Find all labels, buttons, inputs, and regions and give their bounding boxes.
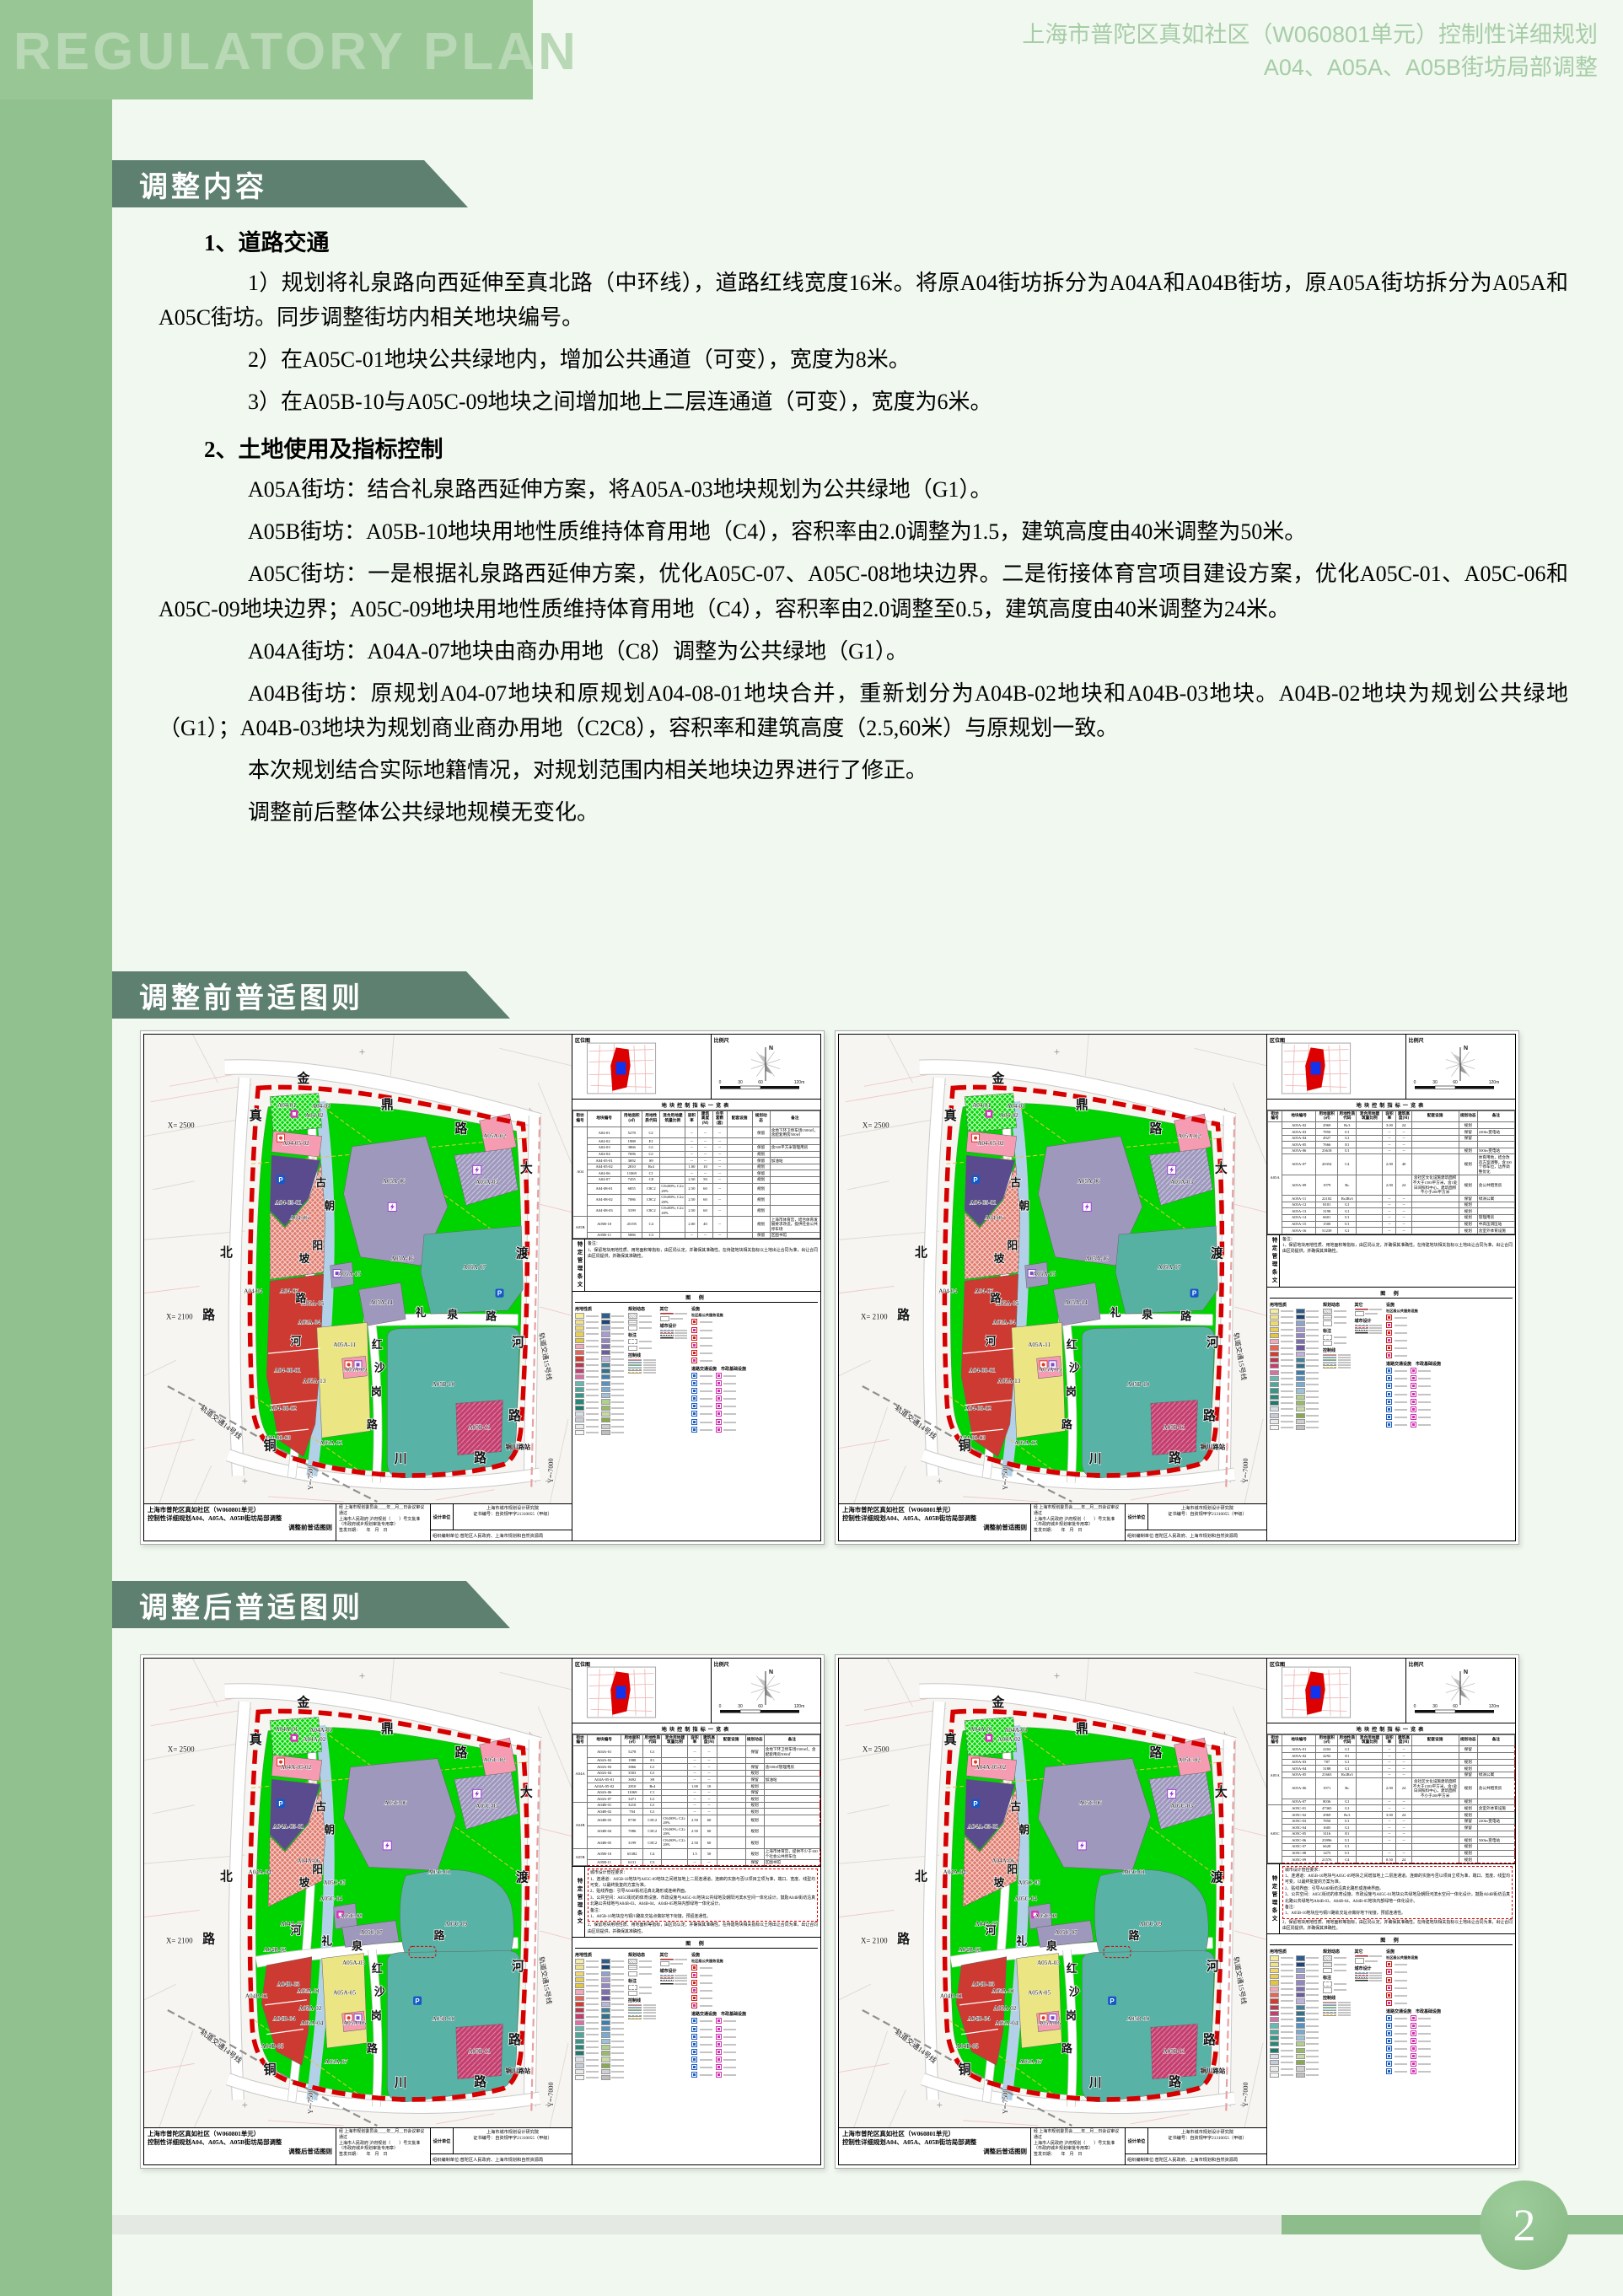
map-label: 路 — [1149, 1745, 1163, 1760]
scale-box: 比例尺N03060120m — [712, 1659, 820, 1723]
map-label: 铜 — [264, 2062, 277, 2077]
table-row: A04-08-027086C8C2C8≤80%; C2≥20%2.5060--规… — [573, 1194, 820, 1205]
svg-text:P: P — [973, 1176, 978, 1184]
map-label: 路 — [1169, 2074, 1182, 2089]
table-row: A04-05-022810Rr41.0010--规划 — [573, 1164, 820, 1170]
special-clause-box: 特定管理条文城市设计管控要求：1、连通道：A05B-10地块与A05C-09地块… — [1267, 1864, 1515, 1935]
plan-area-marker — [1311, 1686, 1321, 1699]
map-label: A05C-06 — [1079, 1800, 1102, 1807]
page-number: 2 — [1513, 2199, 1536, 2251]
table-row: A05C-041605G1----保留 — [1268, 1825, 1515, 1831]
map-label: A05A-01 — [992, 1987, 1014, 1994]
legend-landuse: 用地性质 — [1270, 1300, 1319, 1432]
table-row: A05A-037850U1----保留220kv变电站 — [1268, 1129, 1515, 1136]
map-label: A04A-05-02 — [975, 1764, 1007, 1771]
table-col-header: 建筑高度(M) — [1396, 1111, 1411, 1122]
map-label: A05C-04 — [1014, 1895, 1037, 1902]
titleblock-plan-name: 上海市普陀区真如社区（W060801单元）控制性详细规划A04、A05A、A05… — [839, 2128, 1031, 2164]
map-label: 河 — [985, 1334, 996, 1347]
special-clause-text: 城市设计管控要求：1、连通道：A05B-10地块与A05C-09地块之间增加地上… — [1280, 1864, 1515, 1934]
titleblock-design-unit: 设计单位上海市城市规划设计研究院证书编号：自资规甲字21310055（甲级）组织… — [431, 1504, 572, 1541]
map-label: 渡 — [1211, 1246, 1224, 1261]
map-label: Y=-7000 — [547, 1458, 555, 1483]
map-label: X= 2500 — [168, 1121, 195, 1129]
map-label: A04-06 — [290, 1215, 309, 1222]
map-label: 金 — [991, 1071, 1005, 1086]
map-label: 古 — [315, 1799, 326, 1813]
table-row: A04-077455C82.5050--规划 — [573, 1176, 820, 1183]
map-label: 川 — [394, 1452, 407, 1466]
map-label: 渡 — [1211, 1870, 1224, 1885]
section-banner-adjust-content: 调整内容 — [112, 160, 468, 207]
table-col-header: 地块编号 — [1282, 1735, 1316, 1746]
table-row: A04A-05-022810Rr41.0010规划 — [573, 1783, 820, 1790]
plan-sheet-panel: PPA04-01A04-03A04-02A04-05-02A04-05-01A0… — [140, 1030, 825, 1545]
table-col-header: 容积率 — [1383, 1111, 1396, 1122]
page-number-badge: 2 — [1480, 2180, 1569, 2270]
table-row: A05C-053116E1---- — [1268, 1831, 1515, 1837]
table-col-header: 住宅套数(套) — [712, 1111, 727, 1127]
map-label: 礼 — [1016, 1933, 1027, 1947]
map-label: 路 — [486, 1309, 497, 1322]
svg-text:60: 60 — [1453, 1704, 1458, 1709]
map-label: A04A-01 — [970, 1726, 992, 1733]
location-map-box: 区位图 — [1267, 1659, 1406, 1723]
svg-text:60: 60 — [758, 1704, 763, 1709]
map-label: A04B-01 — [940, 1993, 963, 2000]
map-label: A05A-02 — [1178, 1133, 1201, 1140]
power-icon — [1078, 1842, 1086, 1850]
map-label: Y=-7000 — [1242, 2082, 1249, 2107]
map-label: 阳 — [312, 1239, 323, 1251]
power-icon — [1168, 1165, 1176, 1174]
power-icon — [388, 1202, 396, 1211]
table-row: A04A-05-013692S9----保留加油站 — [573, 1777, 820, 1783]
map-label: 真 — [944, 1732, 957, 1747]
map-label: A05B-11 — [468, 1424, 491, 1431]
svg-text:P: P — [1110, 1998, 1115, 2005]
table-col-header: 建筑高度(M) — [1396, 1735, 1411, 1746]
content-paragraph: 本次规划结合实际地籍情况，对规划范围内相关地块边界进行了修正。 — [159, 753, 1568, 788]
titleblock: 上海市普陀区真如社区（W060801单元）控制性详细规划A04、A05A、A05… — [144, 2127, 572, 2164]
map-label: A05B-10 — [1127, 1381, 1150, 1388]
table-row: A04-08-016855C8C2C8≤80%; C2≥20%2.5060--规… — [573, 1183, 820, 1194]
table-col-header: 配套设施 — [727, 1111, 752, 1127]
facility-icon — [290, 1734, 298, 1741]
map-label: Y=-7500 — [307, 1465, 314, 1491]
facility-icon — [290, 1110, 298, 1117]
legend-title: 图 例 — [1270, 1288, 1513, 1299]
footer-band-green — [1282, 2215, 1623, 2234]
table-row: A05B-115886C3------保留区图书馆 — [573, 1232, 820, 1239]
table-row: A05A-133198G1----规划 — [1268, 1208, 1515, 1215]
special-clause-text: 备注：1、保留地块用地性质、用地面积等指标，由区局认定，并确保其准确性。在待建地… — [585, 1239, 820, 1291]
map-label: 朝 — [1018, 1822, 1029, 1836]
titleblock-approval: 经 上海市规划委员会____年__月__日会议审议通过上海市人民政府 沪府规划（… — [1031, 2128, 1126, 2164]
titleblock-plan-name: 上海市普陀区真如社区（W060801单元）控制性详细规划A04、A05A、A05… — [144, 2128, 336, 2164]
map-label: A05A-09 — [1039, 1367, 1061, 1374]
map-label: 铜川路站 — [1200, 1443, 1225, 1451]
table-title: 地块控制指标一览表 — [1267, 1100, 1515, 1110]
map-label: A05C-09 — [445, 1921, 468, 1928]
special-clause-label: 特定管理条文 — [1267, 1864, 1280, 1934]
scale-box: 比例尺N03060120m — [1406, 1035, 1515, 1099]
map-label: A04-05-02 — [282, 1140, 309, 1147]
table-title: 地块控制指标一览表 — [572, 1723, 820, 1734]
parking-icon: P — [971, 1799, 980, 1808]
svg-text:120m: 120m — [793, 1080, 804, 1085]
table-row: A05A-03787G1----规划 — [1268, 1759, 1515, 1766]
map-label: 泉 — [352, 1938, 363, 1952]
table-row: A05C-0623996U1----规划500kv变电站 — [1268, 1837, 1515, 1844]
table-row: A04B-02704G1----规划 — [573, 1809, 820, 1815]
special-clause-text: 城市设计管控要求：1、连通道：A05B-10地块与A05C-09地块之间增加地上… — [585, 1867, 820, 1937]
table-row: A05A-1651239G1----规划含室外体育设施 — [1268, 1228, 1515, 1234]
legend-other: 其它城市设计 — [1355, 1947, 1383, 2078]
map-label: A05A-04 — [995, 2019, 1018, 2026]
table-row: A04AA04A-015278G1----保留含地下环卫停车场1500㎡，含配套… — [573, 1746, 820, 1757]
table-row: A05A-1122102Rr2Rr3----保留绿洲公寓 — [1268, 1196, 1515, 1202]
table-col-header: 配套设施 — [1411, 1111, 1459, 1122]
map-label: 岗 — [371, 2008, 382, 2022]
north-arrow-scale: N03060120m — [1408, 1042, 1507, 1094]
table-col-header: 备注 — [1477, 1735, 1514, 1746]
svg-text:0: 0 — [718, 1080, 721, 1085]
map-label: A04A-04 — [249, 1869, 271, 1875]
map-label: 路 — [1203, 2032, 1217, 2047]
map-label: A05C-03 — [1170, 1803, 1193, 1809]
legend-facilities: 设施社区级公共服务设施道路交通设施 市政基础设施 — [691, 1950, 746, 2082]
map-label: 河 — [512, 1335, 524, 1350]
before-plan-row: PPA04-01A04-03A04-02A04-05-02A04-05-01A0… — [140, 1030, 1529, 1546]
table-col-header: 地块编号 — [588, 1111, 621, 1127]
table-row: A05A-061971Rc2.0024含社区文化设施建筑面积不大于1583平方米… — [1268, 1778, 1515, 1799]
legend-landuse: 用地性质 — [1270, 1947, 1319, 2078]
map-label: A04-08-02 — [965, 1406, 992, 1412]
map-label: 路 — [433, 1928, 445, 1942]
parcel — [322, 1954, 368, 2048]
map-label: 路 — [1169, 1450, 1182, 1465]
content-heading: 1、道路交通 — [159, 224, 1568, 257]
table-col-header: 规划动态 — [745, 1735, 764, 1746]
legend-status: 规划动态标注控制线 — [628, 1304, 656, 1436]
map-label: 古 — [315, 1175, 326, 1189]
legend-other: 其它城市设计 — [1355, 1300, 1383, 1432]
special-clause-box: 特定管理条文备注：1、保留地块用地性质、用地面积等指标，由区局认定，并确保其准确… — [572, 1239, 820, 1292]
map-label: 路 — [508, 2032, 522, 2047]
section-banner-label: 调整后普适图则 — [139, 1584, 363, 1626]
power-icon — [473, 1789, 481, 1798]
table-row: A05A-151500U1----规划中高压调压站 — [1268, 1221, 1515, 1228]
map-label: 北 — [220, 1246, 234, 1261]
table-col-header: 备注 — [770, 1111, 820, 1127]
map-label: A04A-03 — [309, 1727, 332, 1734]
map-label: A04-01 — [277, 1102, 296, 1109]
map-label: A04B-01 — [245, 1993, 268, 2000]
map-label: A05C-07 — [360, 1929, 383, 1936]
map-label: A04-06 — [985, 1215, 1003, 1222]
control-table-box: 地块控制指标一览表街坊编号地块编号用地面积(㎡)用地性质代码混合用地建筑量比例容… — [1267, 1100, 1515, 1235]
table-col-header: 规划动态 — [1459, 1735, 1477, 1746]
legend-other: 其它城市设计 — [660, 1304, 688, 1436]
map-label: A05A-02 — [483, 1133, 506, 1140]
titleblock: 上海市普陀区真如社区（W060801单元）控制性详细规划A04、A05A、A05… — [839, 2127, 1266, 2164]
parking-icon: P — [277, 1799, 285, 1808]
table-col-header: 配套设施 — [1411, 1735, 1459, 1746]
map-label: 河 — [1207, 1335, 1219, 1350]
svg-text:P: P — [1192, 1290, 1197, 1298]
map-label: A04-04 — [244, 1288, 262, 1295]
map-label: 坡 — [298, 1251, 310, 1265]
legend-landuse: 用地性质 — [575, 1950, 624, 2082]
table-row: A04BA04B-013210G1----规划 — [573, 1802, 820, 1809]
map-label: 铜 — [264, 1438, 277, 1453]
map-label: 鼎 — [1076, 1097, 1088, 1112]
table-col-header: 街坊编号 — [573, 1735, 588, 1746]
svg-text:30: 30 — [738, 1704, 743, 1709]
map-label: A05C-09 — [1140, 1921, 1163, 1928]
map-label: 路 — [508, 1408, 522, 1423]
map-label: 坡 — [298, 1875, 310, 1889]
table-row: A04-033866G1------保留含500平方米管理用房 — [573, 1144, 820, 1151]
legend-status: 规划动态标注控制线 — [1323, 1300, 1351, 1432]
map-label: A05C-06 — [384, 1800, 407, 1807]
map-label: 川 — [1088, 2076, 1102, 2090]
map-label: 坡 — [993, 1251, 1005, 1265]
titleblock: 上海市普陀区真如社区（W060801单元）控制性详细规划A04、A05A、A05… — [839, 1503, 1266, 1541]
control-index-table: 街坊编号地块编号用地面积(㎡)用地性质代码混合用地建筑量比例容积率建筑高度(M)… — [1267, 1734, 1515, 1863]
svg-text:0: 0 — [1413, 1080, 1416, 1085]
map-label: 阳 — [312, 1863, 323, 1875]
table-row: A05AA05A-022969Rc33.0024规划 — [1268, 1122, 1515, 1129]
table-col-header: 备注 — [764, 1735, 820, 1746]
location-inset-map — [1269, 1666, 1363, 1718]
plan-map-area: PPA04-01A04-03A04-02A04-05-02A04-05-01A0… — [144, 1035, 572, 1503]
map-label: 泉 — [1046, 1938, 1058, 1952]
table-row: A04B-038730C8C2C8≤80%; C2≥20%2.5060规划 — [573, 1815, 820, 1826]
map-label: 河 — [985, 1923, 996, 1937]
map-label: 路 — [1203, 1408, 1217, 1423]
plan-sheet-panel: PPA04-01A04-03A04-02A04-05-02A04-05-01A0… — [835, 1030, 1519, 1545]
facility-icon — [985, 1110, 992, 1117]
location-map-box: 区位图 — [1267, 1035, 1406, 1099]
svg-text:60: 60 — [758, 1080, 763, 1085]
map-label: 礼 — [1110, 1305, 1121, 1319]
table-col-header: 用地性质代码 — [642, 1111, 660, 1127]
table-row: A05C-076628U1规划 — [1268, 1843, 1515, 1850]
table-col-header: 用地性质代码 — [1338, 1735, 1357, 1746]
table-row: A04B-053199C8C2C8≤80%; C2≥20%2.5060规划 — [573, 1837, 820, 1848]
map-label: 鼎 — [381, 1721, 394, 1736]
table-row: A05A-0521663Rr2Rr3----保留绿洲公寓 — [1268, 1772, 1515, 1778]
map-label: A05A-13 — [303, 1378, 325, 1385]
map-label: 路 — [295, 1291, 307, 1304]
map-label: 鼎 — [1076, 1721, 1088, 1736]
svg-text:120m: 120m — [1488, 1704, 1499, 1709]
table-col-header: 用地性质代码 — [1338, 1111, 1357, 1122]
power-icon — [1083, 1202, 1091, 1211]
adjust-content-text: 1、道路交通1）规划将礼泉路向西延伸至真北路（中环线），道路红线宽度16米。将原… — [159, 212, 1568, 837]
map-label: A04-02 — [1000, 1112, 1018, 1119]
map-label: A05A-15 — [1033, 1271, 1056, 1277]
map-label: 真 — [250, 1732, 262, 1747]
parcel — [1017, 1954, 1062, 2048]
map-label: A04B-02 — [264, 1946, 287, 1953]
map-label: A05A-04 — [300, 2019, 323, 2026]
location-inset-map — [574, 1666, 669, 1718]
svg-text:120m: 120m — [1488, 1080, 1499, 1085]
map-label: A04-02 — [305, 1112, 324, 1119]
table-row: A05BA05B-1065382C41.550规划上海市体育宫，提供不少于100… — [573, 1848, 820, 1859]
map-label: A05A-06 — [1078, 1178, 1100, 1185]
map-label: A05B-10 — [433, 1381, 455, 1388]
map-label: 路 — [1061, 2041, 1073, 2055]
map-label: A04-08-01 — [969, 1368, 996, 1374]
plan-map-area: PPA04A-01A04A-03A04A-02A04A-05-02A04A-05… — [839, 1659, 1266, 2127]
legend-title: 图 例 — [575, 1293, 818, 1303]
table-col-header: 用地面积(㎡) — [621, 1111, 642, 1127]
map-label: A05C-01 — [1123, 1869, 1146, 1875]
table-col-header: 用地面积(㎡) — [621, 1735, 643, 1746]
table-row: A05A-057666E1---- — [1268, 1142, 1515, 1148]
map-label: 真 — [944, 1108, 957, 1123]
table-col-header: 规划动态 — [752, 1111, 770, 1127]
svg-text:N: N — [769, 1046, 773, 1051]
map-label: 路 — [454, 1745, 468, 1760]
table-row: A04A04-015278G1------保留含地下环卫停车场1500㎡，含配套… — [573, 1127, 820, 1138]
svg-text:N: N — [1464, 1046, 1468, 1051]
map-label: Y=-7000 — [547, 2082, 555, 2107]
map-label: Y=-7000 — [1242, 1458, 1249, 1483]
map-label: 河 — [290, 1923, 301, 1937]
map-label: A04B-05 — [261, 2043, 284, 2050]
map-label: A05A-14 — [1065, 1299, 1088, 1306]
parking-icon: P — [971, 1175, 980, 1184]
table-row: A05A-0623618U1----规划500kv变电站 — [1268, 1148, 1515, 1154]
content-paragraph: 3）在A05B-10与A05C-09地块之间增加地上二层连通道（可变），宽度为6… — [159, 384, 1568, 419]
map-label: 北 — [915, 1870, 928, 1885]
plan-map-area: PPA04-01A04-03A04-02A04-05-02A04-05-01A0… — [839, 1035, 1266, 1503]
map-label: A04-03 — [1007, 1103, 1025, 1110]
map-label: A05B-11 — [1163, 2048, 1185, 2055]
map-label: 川 — [1088, 1452, 1102, 1466]
table-col-header: 地块编号 — [588, 1735, 621, 1746]
content-paragraph: A04B街坊：原规划A04-07地块和原规划A04-08-01地块合并，重新划分… — [159, 676, 1568, 745]
table-row: A04-047696G1------规划 — [573, 1151, 820, 1158]
map-label: A04B-03 — [972, 1981, 995, 1987]
map-label: A05A-03 — [342, 1960, 365, 1966]
table-row: A04A-073471G1----规划 — [573, 1796, 820, 1803]
map-label: 红 — [372, 1961, 383, 1975]
table-row: A05C-081475U1----规划 — [1268, 1850, 1515, 1857]
map-label: 红 — [1067, 1337, 1078, 1351]
plan-map: PPA04A-01A04A-03A04A-02A04A-05-02A04A-05… — [839, 1659, 1266, 2127]
facility-icon — [985, 1734, 992, 1741]
titleblock-plan-name: 上海市普陀区真如社区（W060801单元）控制性详细规划A04、A05A、A05… — [839, 1504, 1031, 1541]
special-clause-label: 特定管理条文 — [572, 1239, 585, 1291]
parking-icon: P — [413, 1997, 422, 2005]
table-row: A05C-037850U1----保留220kv变电站 — [1268, 1818, 1515, 1825]
map-label: 大 — [1215, 1784, 1228, 1799]
legend-landuse: 用地性质 — [575, 1304, 624, 1436]
content-paragraph: 调整前后整体公共绿地规模无变化。 — [159, 795, 1568, 830]
table-col-header: 混合用地建筑量比例 — [660, 1111, 685, 1127]
map-label: X= 2100 — [166, 1936, 193, 1944]
location-map-box: 区位图 — [572, 1659, 712, 1723]
map-label: 路 — [897, 1307, 911, 1322]
table-col-header: 地块编号 — [1282, 1111, 1316, 1122]
map-label: A05A-03 — [476, 1179, 498, 1186]
map-label: A05A-06 — [1038, 2019, 1061, 2026]
left-accent-column — [0, 0, 112, 2296]
map-label: A04-04 — [938, 1288, 957, 1295]
plan-area-marker — [616, 1062, 626, 1075]
map-label: A05A-02 — [993, 2005, 1016, 2012]
control-index-table: 街坊编号地块编号用地面积(㎡)用地性质代码混合用地建筑量比例容积率建筑高度(M)… — [572, 1734, 820, 1866]
map-label: 朝 — [1018, 1198, 1029, 1212]
legend-title: 图 例 — [575, 1938, 818, 1949]
table-col-header: 用地面积(㎡) — [1316, 1111, 1338, 1122]
section-banner-label: 调整前普适图则 — [139, 975, 363, 1016]
plan-map: PPA04-01A04-03A04-02A04-05-02A04-05-01A0… — [839, 1035, 1266, 1503]
content-paragraph: A05B街坊：A05B-10地块用地性质维持体育用地（C4），容积率由2.0调整… — [159, 514, 1568, 549]
map-label: 铜川路站 — [505, 1443, 530, 1451]
map-label: 路 — [202, 1931, 216, 1946]
table-row: A05BA05B-1045195C42.0040--规划上海市体育宫，结合体育发… — [573, 1217, 820, 1233]
titleblock-design-unit: 设计单位上海市城市规划设计研究院证书编号：自资规甲字21310055（甲级）组织… — [431, 2128, 572, 2164]
map-label: 渡 — [516, 1246, 529, 1261]
plan-area-marker — [616, 1686, 626, 1699]
table-col-header: 街坊编号 — [1268, 1111, 1282, 1122]
map-label: 礼 — [321, 1933, 332, 1947]
content-paragraph: A05A街坊：结合礼泉路西延伸方案，将A05A-03地块规划为公共绿地（G1）。 — [159, 472, 1568, 507]
map-label: A05C-05 — [323, 1879, 346, 1886]
map-label: A05C-04 — [320, 1895, 342, 1902]
map-label: 大 — [1215, 1160, 1228, 1175]
legend-facilities: 设施社区级公共服务设施道路交通设施 市政基础设施 — [1386, 1947, 1441, 2078]
legend-box: 图 例用地性质规划动态标注控制线其它城市设计设施社区级公共服务设施道路交通设施 … — [1267, 1934, 1515, 2164]
map-label: 渡 — [516, 1870, 529, 1885]
map-label: 大 — [520, 1784, 533, 1799]
section-banner-after-plan: 调整后普适图则 — [112, 1581, 510, 1628]
map-label: 阳 — [1007, 1863, 1018, 1875]
table-col-header: 混合用地建筑量比例 — [662, 1735, 688, 1746]
titleblock-design-unit: 设计单位上海市城市规划设计研究院证书编号：自资规甲字21310055（甲级）组织… — [1126, 2128, 1266, 2164]
map-label: 红 — [1067, 1961, 1078, 1975]
map-label: 川 — [394, 2076, 407, 2090]
map-label: Y=-7500 — [1002, 1465, 1009, 1491]
map-label: A05A-12 — [320, 1439, 342, 1446]
clause-highlight: 城市设计管控要求：1、连通道：A05B-10地块与A05C-09地块之间增加地上… — [588, 1869, 818, 1922]
map-label: A05A-12 — [1014, 1439, 1037, 1446]
legend-box: 图 例用地性质规划动态标注控制线其它城市设计设施社区级公共服务设施道路交通设施 … — [572, 1292, 820, 1541]
map-label: A04A-03 — [1004, 1727, 1027, 1734]
table-row: A05B-116131C3----保留区图书馆 — [573, 1859, 820, 1866]
scale-box: 比例尺N03060120m — [1406, 1659, 1515, 1723]
map-label: 古 — [1010, 1175, 1021, 1189]
svg-text:0: 0 — [718, 1704, 721, 1709]
parking-icon: P — [1108, 1997, 1116, 2005]
plan-sheet-panel: PPA04A-01A04A-03A04A-02A04A-05-02A04A-05… — [140, 1654, 825, 2169]
clause-highlight: 城市设计管控要求：1、连通道：A05B-10地块与A05C-09地块之间增加地上… — [1282, 1866, 1513, 1919]
content-paragraph: A04A街坊：A04A-07地块由商办用地（C8）调整为公共绿地（G1）。 — [159, 634, 1568, 669]
table-row: A05CA05C-0147365G1----规划含室外体育设施 — [1268, 1805, 1515, 1812]
map-label: A04B-03 — [277, 1981, 300, 1987]
section-banner-before-plan: 调整前普适图则 — [112, 971, 510, 1019]
after-plan-row: PPA04A-01A04A-03A04A-02A04A-05-02A04A-05… — [140, 1654, 1529, 2170]
map-label: A04B-04 — [273, 2015, 296, 2022]
map-label: 岗 — [371, 1385, 382, 1398]
